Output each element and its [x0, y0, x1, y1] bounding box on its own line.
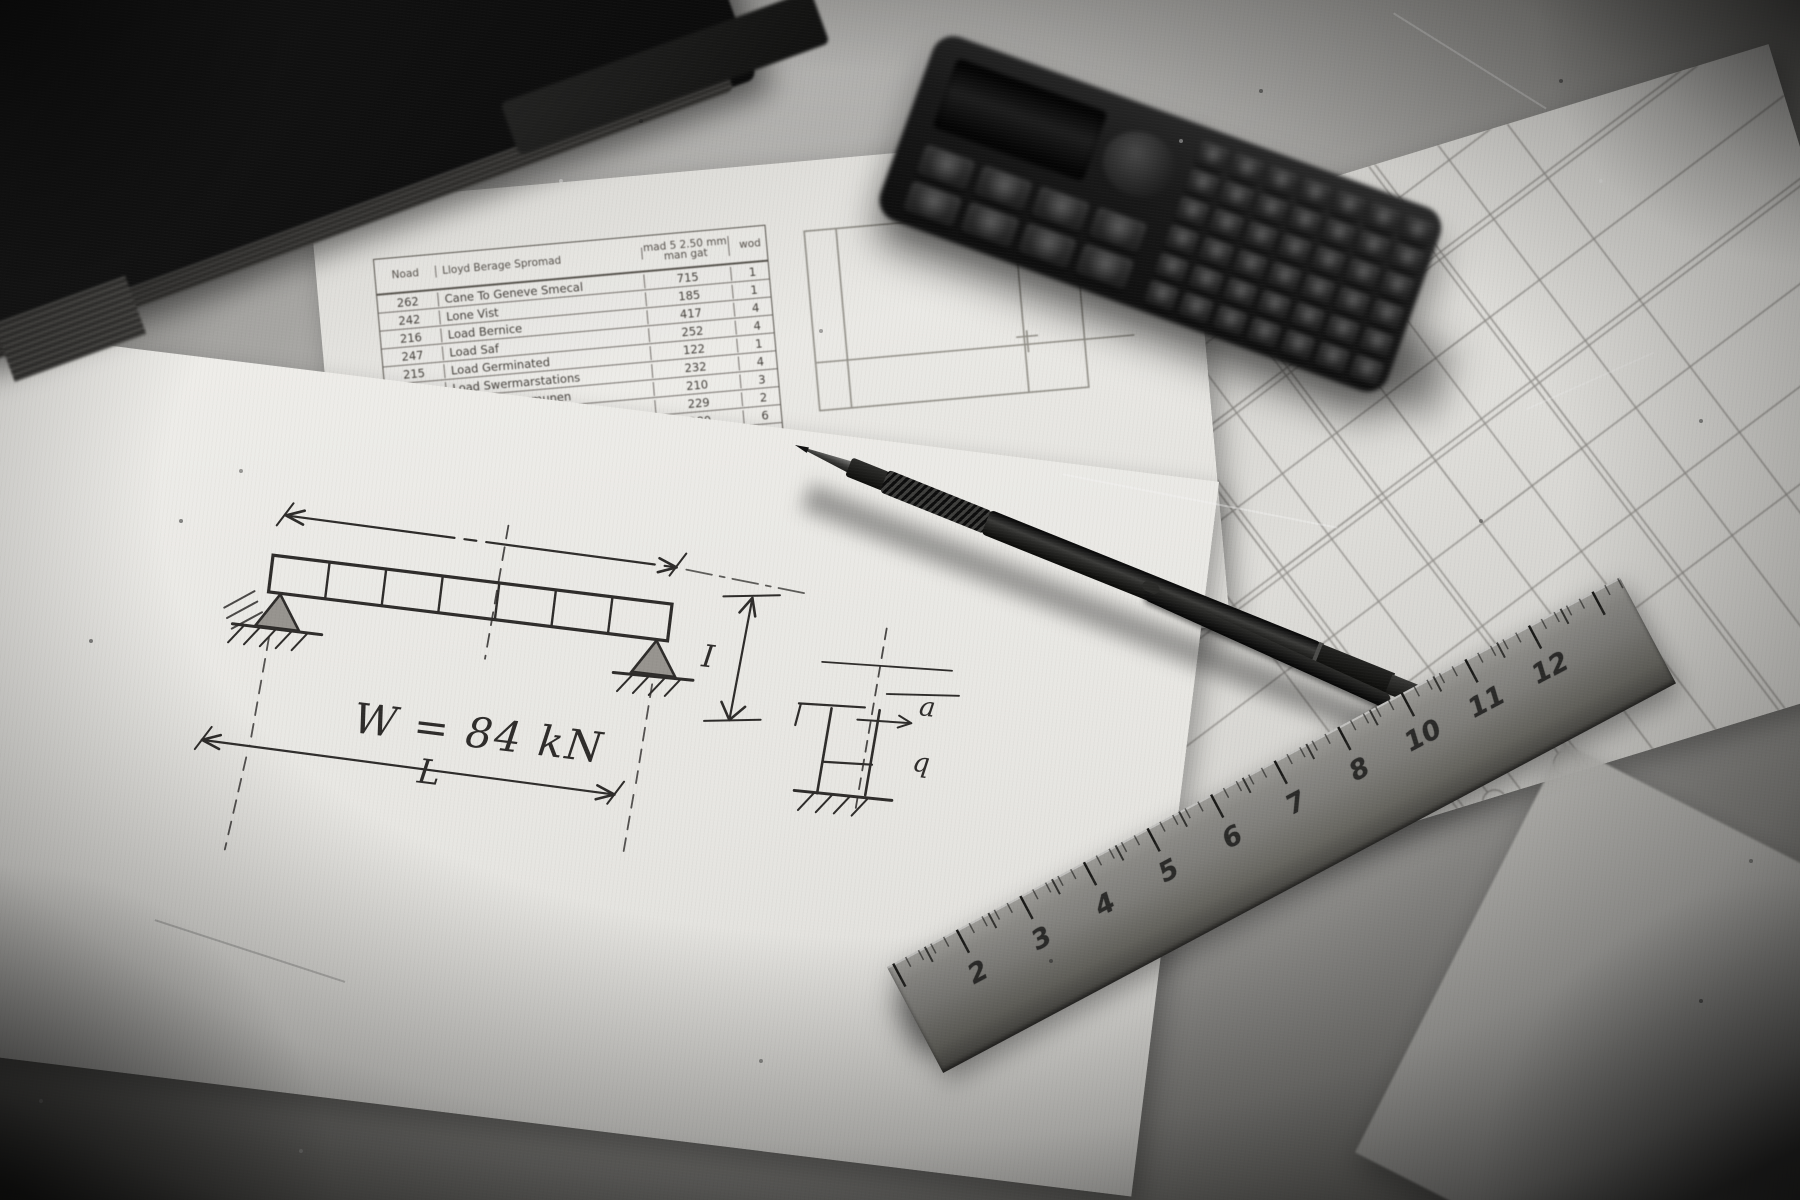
cell-qty: 4 — [736, 316, 779, 334]
calculator-key — [1388, 243, 1425, 276]
calculator-key — [1208, 208, 1245, 241]
calculator-key — [1330, 190, 1367, 223]
calculator-key — [1314, 342, 1351, 375]
calculator-key — [1286, 205, 1323, 238]
cell-qty: 4 — [739, 352, 782, 370]
calculator-key — [1252, 193, 1289, 226]
calculator-key — [1310, 246, 1347, 279]
calculator-key — [1194, 140, 1231, 173]
calculator-key — [1296, 178, 1333, 211]
header-no: Noad — [375, 266, 437, 283]
header-qty: wod — [729, 236, 772, 252]
calculator-key — [1074, 243, 1134, 290]
width-side-label: q — [911, 747, 932, 780]
calculator-key — [1368, 298, 1405, 331]
load-value-label: W = 84 kN — [351, 693, 607, 772]
calculator-key — [1242, 221, 1279, 254]
span-label: L — [414, 751, 442, 794]
cell-qty: 2 — [742, 388, 785, 406]
cell-qty: 4 — [734, 299, 777, 317]
calculator-key — [1187, 264, 1224, 297]
calculator-key — [1290, 301, 1327, 334]
calculator-key — [1358, 326, 1395, 359]
calculator-key — [1228, 153, 1265, 186]
calculator-key — [1198, 236, 1235, 269]
calculator-key — [1164, 224, 1201, 257]
calculator-key — [1143, 280, 1180, 313]
calculator-key — [1246, 317, 1283, 350]
calculator-key — [1300, 274, 1337, 307]
calculator-key — [1017, 223, 1077, 270]
calculator-key — [1184, 168, 1221, 201]
calculator-key — [1266, 261, 1303, 294]
calculator-key — [1153, 252, 1190, 285]
calculator-key — [1344, 258, 1381, 291]
calculator-key — [1348, 354, 1385, 387]
cell-qty: 3 — [740, 370, 783, 388]
calculator-key — [1218, 181, 1255, 214]
calculator-key — [1262, 165, 1299, 198]
calculator-key — [1222, 277, 1259, 310]
calculator-key — [960, 202, 1020, 249]
cell-qty: 6 — [743, 406, 786, 424]
calculator-key — [1324, 314, 1361, 347]
dust-specks — [0, 0, 2, 2]
cell-qty: 1 — [731, 263, 774, 281]
calculator-key — [1354, 230, 1391, 263]
cell-qty: 1 — [737, 334, 780, 352]
pencil-lead-point — [794, 442, 809, 453]
calculator-key — [1399, 215, 1436, 248]
calculator-key — [1280, 329, 1317, 362]
calculator-nav-button — [1093, 121, 1184, 206]
calculator-key — [1334, 286, 1371, 319]
depth-label: I — [699, 638, 717, 675]
calculator-key — [1364, 202, 1401, 235]
calculator-key — [1256, 289, 1293, 322]
calculator-key — [902, 181, 962, 228]
calculator-key — [1378, 270, 1415, 303]
calculator-key — [1174, 196, 1211, 229]
header-val: mad 5 2.50 mm man gat — [642, 236, 730, 264]
header-desc: Lloyd Berage Spromad — [436, 248, 643, 278]
width-top-label: a — [918, 691, 938, 724]
calculator-key — [1177, 292, 1214, 325]
calculator-key — [1276, 233, 1313, 266]
calculator-key — [1211, 304, 1248, 337]
desk-scene: Noad Lloyd Berage Spromad mad 5 2.50 mm … — [0, 0, 1800, 1200]
cell-qty: 1 — [732, 281, 775, 299]
calculator-key — [1232, 249, 1269, 282]
calculator-key — [1320, 218, 1357, 251]
